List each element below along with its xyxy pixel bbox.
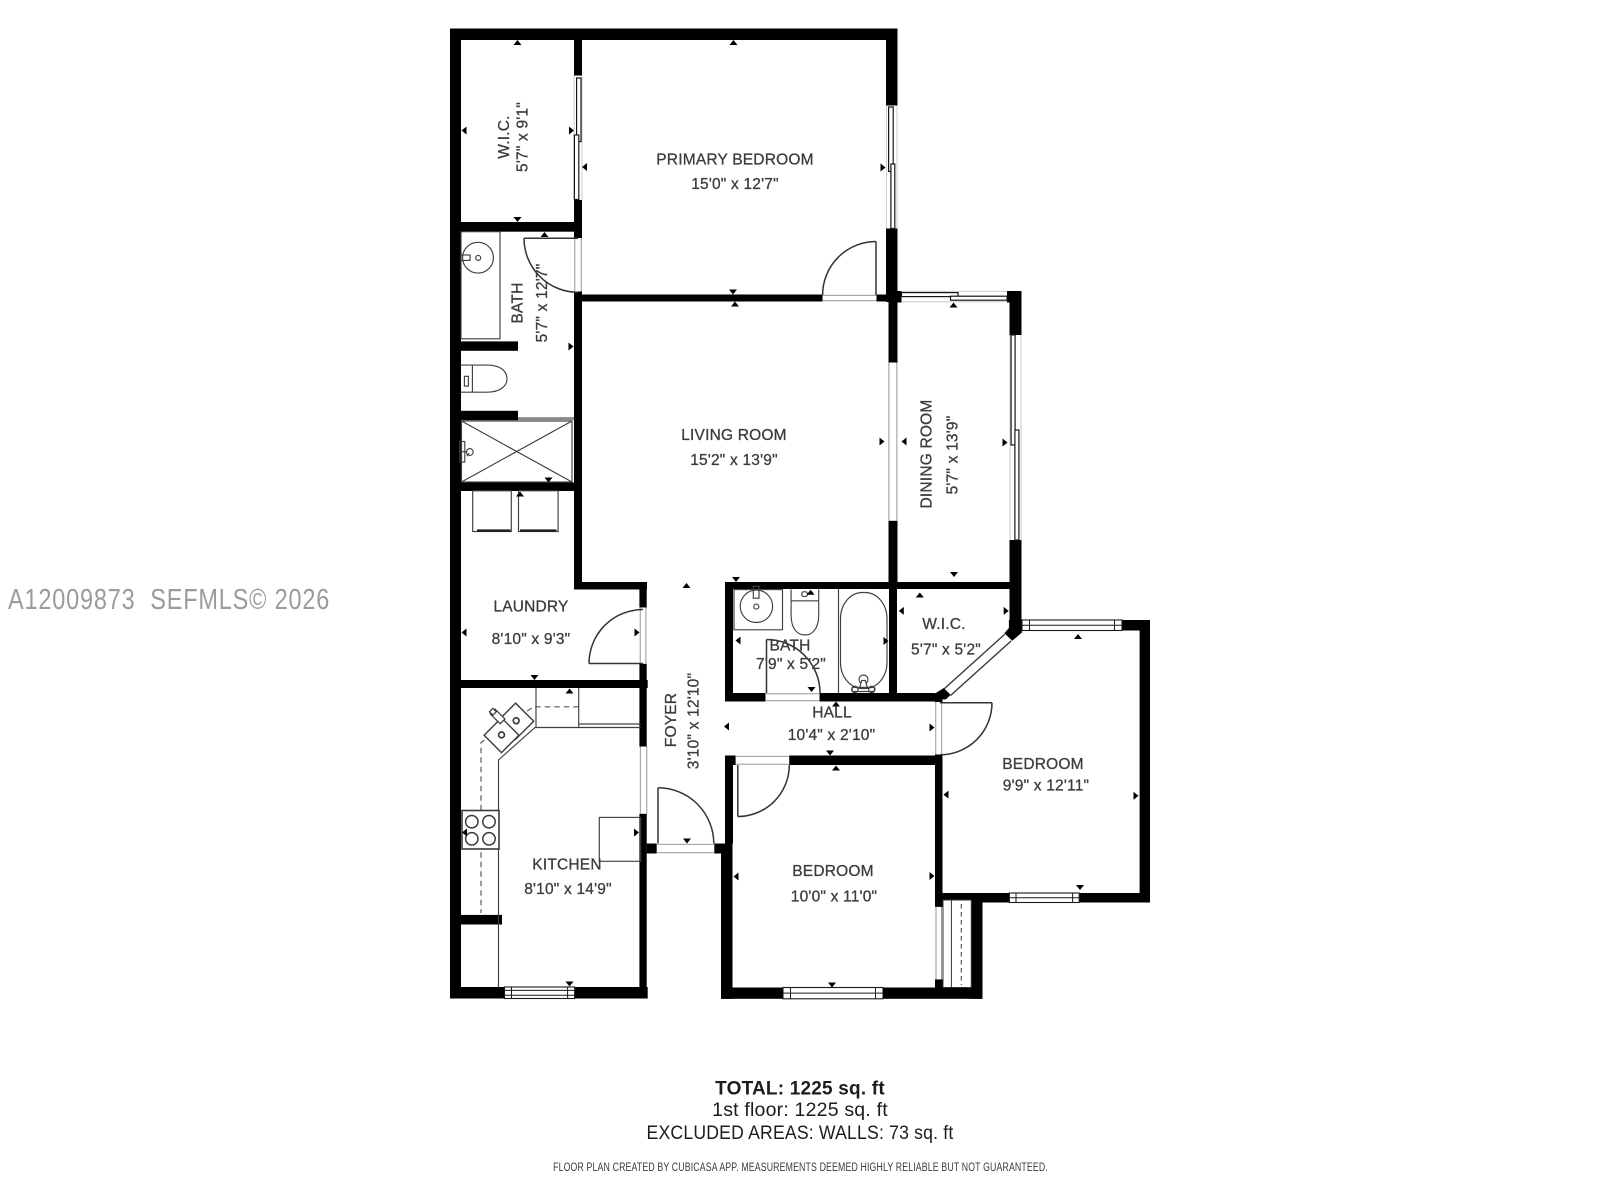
svg-text:10'0" x 11'0": 10'0" x 11'0" — [791, 889, 877, 906]
svg-text:FOYER: FOYER — [663, 693, 680, 747]
svg-text:LIVING ROOM: LIVING ROOM — [681, 427, 787, 444]
svg-text:A12009873 SEFMLS© 2026: A12009873 SEFMLS© 2026 — [8, 583, 330, 616]
svg-text:BEDROOM: BEDROOM — [792, 863, 874, 880]
svg-text:10'4" x 2'10": 10'4" x 2'10" — [788, 727, 876, 744]
svg-text:BEDROOM: BEDROOM — [1002, 756, 1084, 773]
svg-text:15'0" x 12'7": 15'0" x 12'7" — [691, 176, 779, 193]
svg-text:LAUNDRY: LAUNDRY — [493, 599, 568, 616]
svg-text:5'7" x 9'1": 5'7" x 9'1" — [515, 102, 532, 172]
svg-text:3'10" x 12'10": 3'10" x 12'10" — [686, 673, 703, 769]
svg-text:EXCLUDED AREAS: WALLS: 73 sq.: EXCLUDED AREAS: WALLS: 73 sq. ft — [647, 1121, 955, 1143]
svg-text:KITCHEN: KITCHEN — [532, 857, 601, 874]
svg-text:BATH: BATH — [510, 283, 527, 324]
svg-text:W.I.C.: W.I.C. — [922, 616, 965, 633]
svg-text:9'9" x 12'11": 9'9" x 12'11" — [1003, 778, 1089, 795]
svg-text:5'7" x 13'9": 5'7" x 13'9" — [945, 416, 962, 495]
svg-text:DINING ROOM: DINING ROOM — [919, 400, 936, 509]
svg-text:FLOOR PLAN CREATED BY CUBICASA: FLOOR PLAN CREATED BY CUBICASA APP. MEAS… — [553, 1162, 1048, 1174]
svg-text:TOTAL: 1225 sq. ft: TOTAL: 1225 sq. ft — [715, 1079, 885, 1100]
svg-text:8'10" x 14'9": 8'10" x 14'9" — [524, 881, 612, 898]
svg-text:15'2" x 13'9": 15'2" x 13'9" — [690, 452, 778, 469]
svg-text:W.I.C.: W.I.C. — [496, 115, 513, 158]
svg-text:5'7" x 12'7": 5'7" x 12'7" — [534, 264, 551, 343]
svg-text:5'7" x 5'2": 5'7" x 5'2" — [911, 642, 981, 659]
svg-text:HALL: HALL — [812, 705, 852, 722]
svg-text:PRIMARY BEDROOM: PRIMARY BEDROOM — [656, 152, 813, 169]
svg-text:8'10" x 9'3": 8'10" x 9'3" — [492, 631, 571, 648]
svg-text:1st floor: 1225 sq. ft: 1st floor: 1225 sq. ft — [712, 1099, 888, 1121]
svg-text:7'9" x 5'2": 7'9" x 5'2" — [756, 656, 826, 673]
svg-text:BATH: BATH — [770, 638, 811, 655]
